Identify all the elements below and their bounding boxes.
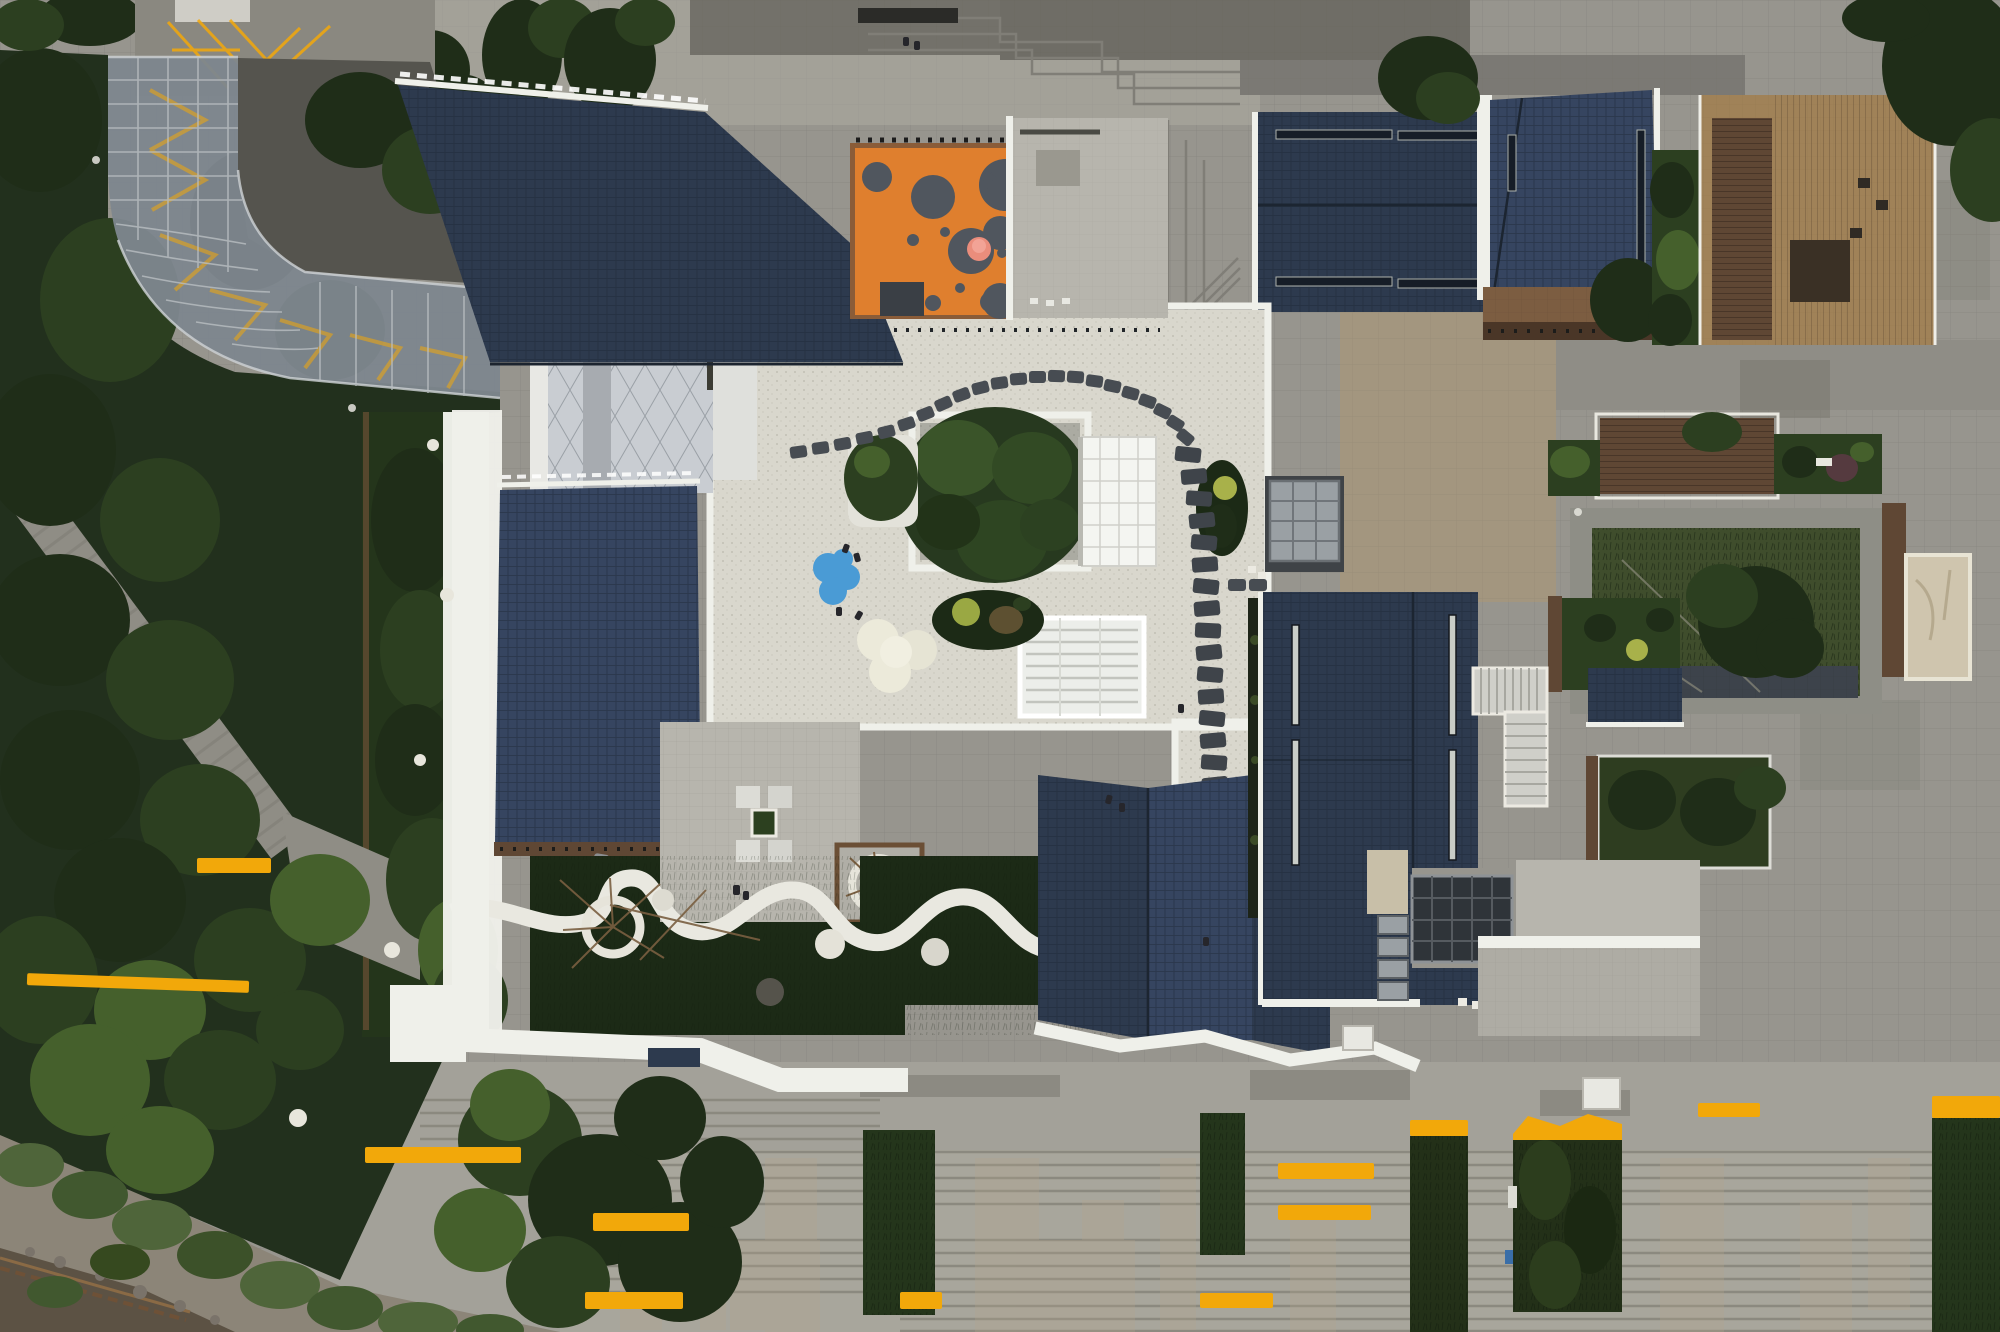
bench-planter [752,810,776,836]
sand-court [1906,555,1970,679]
central-tree [898,407,1092,583]
aerial-photo-canvas [0,0,2000,1332]
lamp-icon [1574,508,1582,516]
orange-playground [850,140,1031,319]
sand-pit [1367,850,1408,914]
white-bench-box [1343,1026,1373,1050]
plaza-bench [858,8,958,23]
aerial-photo [0,0,2000,1332]
roof-deck [1596,412,1778,498]
upper-terrace [1006,116,1168,320]
tree-roof-garden [1586,756,1786,868]
street-lamp-icon [92,156,100,164]
green-island [932,590,1044,650]
small-roof [1586,668,1684,727]
timber-building [1700,95,1935,345]
street-lamp-icon [348,404,356,412]
courtyard-bush [844,435,918,521]
roof-e [1252,112,1505,312]
skylight-grid [1078,437,1156,566]
pine-bed [1505,1136,1622,1312]
white-bench-box [1583,1078,1620,1109]
